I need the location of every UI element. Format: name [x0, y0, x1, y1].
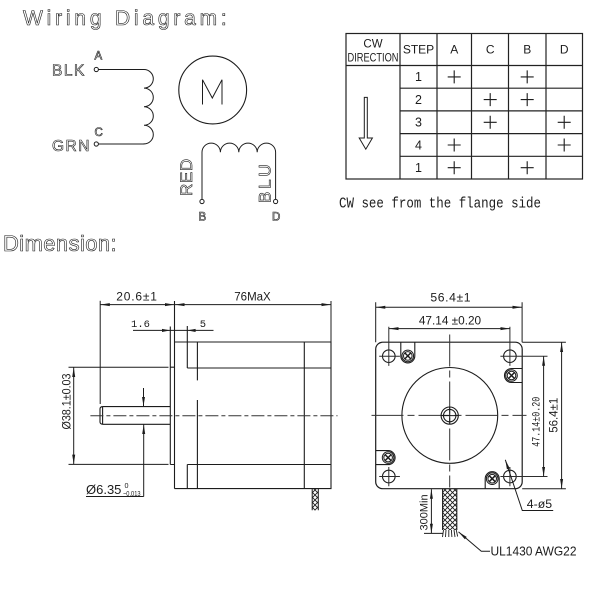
svg-text:4: 4	[415, 138, 422, 152]
svg-text:47.14 ±0.20: 47.14 ±0.20	[419, 314, 482, 328]
svg-text:2: 2	[415, 93, 422, 107]
svg-text:D: D	[272, 212, 280, 224]
svg-text:A: A	[450, 43, 458, 57]
svg-text:CW: CW	[363, 39, 382, 51]
svg-text:4-ø5: 4-ø5	[527, 497, 552, 511]
svg-text:3: 3	[415, 116, 422, 130]
svg-text:Ø6.35: Ø6.35	[86, 482, 121, 497]
svg-text:1.6: 1.6	[131, 319, 150, 331]
svg-text:STEP: STEP	[403, 43, 434, 57]
svg-text:−0.013: −0.013	[123, 489, 141, 498]
svg-text:Ø38.1±0.03: Ø38.1±0.03	[60, 373, 74, 429]
svg-text:B: B	[199, 212, 207, 224]
svg-text:300Min: 300Min	[419, 494, 431, 530]
svg-text:C: C	[95, 127, 103, 139]
svg-text:1: 1	[415, 70, 422, 84]
svg-text:56.4±1: 56.4±1	[430, 291, 471, 305]
svg-text:BLU: BLU	[256, 162, 275, 203]
svg-text:D: D	[560, 43, 569, 57]
svg-text:B: B	[523, 43, 531, 57]
svg-text:CW see from the flange side: CW see from the flange side	[339, 196, 541, 213]
svg-text:BLK: BLK	[52, 63, 86, 80]
svg-text:A: A	[95, 51, 103, 63]
svg-text:76MaX: 76MaX	[234, 292, 271, 304]
svg-text:Wiring Diagram:: Wiring Diagram:	[23, 7, 231, 30]
svg-text:C: C	[486, 43, 495, 57]
svg-text:UL1430 AWG22: UL1430 AWG22	[491, 544, 577, 559]
svg-text:5: 5	[200, 319, 206, 331]
svg-text:GRN: GRN	[52, 138, 91, 155]
svg-text:20.6±1: 20.6±1	[116, 290, 157, 304]
svg-text:RED: RED	[177, 158, 196, 196]
svg-text:DIRECTION: DIRECTION	[348, 53, 399, 65]
svg-text:Dimension:: Dimension:	[3, 231, 117, 256]
svg-text:1: 1	[415, 161, 422, 175]
svg-text:56.4±1: 56.4±1	[547, 398, 561, 433]
svg-text:47.14±0.20: 47.14±0.20	[532, 397, 544, 447]
